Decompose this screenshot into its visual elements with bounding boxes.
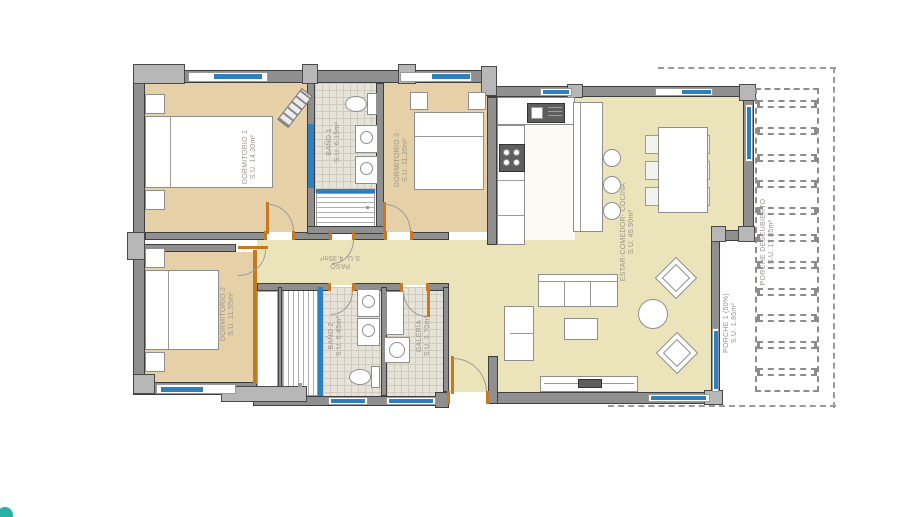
door-jamb — [410, 231, 413, 240]
pergola-joist — [757, 154, 817, 162]
pergola-joist — [757, 261, 817, 269]
pillar — [488, 356, 498, 404]
door-jamb — [352, 231, 355, 240]
door-jamb — [328, 283, 331, 291]
sink-basin — [360, 162, 373, 175]
laundry-counter — [386, 291, 404, 335]
wall-block — [711, 226, 726, 242]
pergola-joist — [757, 180, 817, 188]
counter-line — [497, 180, 525, 181]
shower-drain — [366, 206, 369, 209]
window-glass — [651, 396, 706, 400]
burner — [513, 159, 520, 166]
window-glass — [432, 74, 470, 79]
wall-block — [738, 226, 755, 242]
drainer-line — [548, 111, 562, 112]
stove — [499, 144, 525, 172]
room-label-porche1: PORCHE 1 (50%) S.U. 1.85m² — [723, 268, 739, 378]
room-name: PORCHE 1 (50%) — [723, 268, 731, 378]
wall-segment — [278, 287, 282, 396]
shower-screen — [318, 287, 323, 396]
pergola-joist — [757, 100, 817, 108]
shower-screen — [316, 189, 375, 193]
door-jamb — [264, 231, 267, 240]
bed — [145, 270, 219, 350]
plot-boundary — [833, 67, 836, 408]
pergola-joist — [757, 288, 817, 296]
door-jamb — [292, 231, 295, 240]
glass-panel — [308, 124, 314, 188]
burner — [503, 149, 510, 156]
toilet-bowl — [349, 369, 371, 385]
coffee-table — [564, 318, 598, 340]
door-jamb — [486, 391, 489, 404]
sofa — [538, 274, 618, 307]
door-jamb — [426, 283, 429, 291]
bed — [414, 112, 484, 190]
island-counter — [573, 102, 603, 232]
door-jamb — [384, 231, 387, 240]
wall-block — [133, 64, 185, 84]
counter-line — [497, 215, 525, 216]
nightstand — [145, 248, 165, 268]
door-jamb — [400, 283, 403, 291]
window-glass — [682, 90, 711, 94]
wall-segment — [487, 97, 497, 245]
bed — [145, 116, 273, 188]
nightstand — [145, 190, 165, 210]
floor-plan: DORMITORIO 1 S.U. 14.30m² BAÑO 1 S.U. 6.… — [0, 0, 915, 517]
dining-table — [658, 127, 708, 213]
toilet-tank — [371, 366, 380, 388]
bar-stool — [603, 202, 621, 220]
side-table — [638, 299, 668, 329]
door-jamb — [447, 391, 450, 404]
window-glass — [389, 399, 433, 403]
tv — [578, 379, 602, 388]
pergola-joist — [757, 341, 817, 349]
sofa-line — [590, 282, 591, 306]
bed-pillow-line — [170, 117, 171, 187]
shower-drain — [298, 383, 302, 387]
bar-stool — [603, 149, 621, 167]
drainer-line — [548, 115, 562, 116]
pergola-joist — [757, 314, 817, 322]
window-glass — [747, 107, 751, 159]
bed-pillow-line — [168, 271, 169, 349]
pergola-joist — [757, 127, 817, 135]
counter-line — [580, 103, 581, 231]
nightstand — [468, 92, 486, 110]
nightstand — [145, 352, 165, 372]
plot-boundary — [658, 67, 836, 70]
wall-block — [739, 84, 756, 101]
logo-dot — [0, 507, 13, 517]
burner — [503, 159, 510, 166]
wall-segment — [307, 226, 384, 234]
nightstand — [145, 94, 165, 114]
wall-segment — [412, 232, 449, 240]
shower-tray — [282, 287, 318, 396]
toilet-tank — [367, 93, 377, 115]
window-glass — [214, 74, 262, 79]
wall-segment — [443, 287, 449, 392]
shower-tray — [316, 193, 375, 229]
plot-boundary — [608, 405, 836, 408]
sofa-line — [564, 282, 565, 306]
pergola-joist — [757, 368, 817, 376]
wall-block — [127, 232, 145, 260]
door-leaf — [427, 287, 430, 317]
pergola-joist — [757, 207, 817, 215]
wall-segment — [145, 232, 267, 240]
bed-pillow-line — [415, 136, 483, 137]
sink-bowl — [531, 107, 543, 119]
sink-basin — [360, 131, 373, 144]
window-glass — [714, 331, 718, 389]
pergola-joist — [757, 234, 817, 242]
toilet-bowl — [345, 96, 367, 112]
sofa-line — [510, 333, 534, 334]
sofa-line — [539, 281, 617, 282]
room-area: S.U. 1.85m² — [731, 268, 739, 378]
drainer-line — [548, 107, 562, 108]
window-glass — [543, 90, 569, 94]
closet — [257, 291, 278, 396]
wall-block — [302, 64, 318, 84]
burner — [513, 149, 520, 156]
sink-basin — [362, 295, 375, 308]
sink-basin — [362, 324, 375, 337]
window-glass — [161, 387, 203, 392]
washer-drum — [389, 342, 405, 358]
door-jamb — [329, 231, 332, 240]
wall-block — [133, 374, 155, 394]
bar-stool — [603, 176, 621, 194]
door-jamb — [352, 283, 355, 291]
nightstand — [410, 92, 428, 110]
window-glass — [331, 399, 365, 403]
kitchen-counter — [497, 125, 525, 245]
door-leaf — [238, 246, 268, 249]
